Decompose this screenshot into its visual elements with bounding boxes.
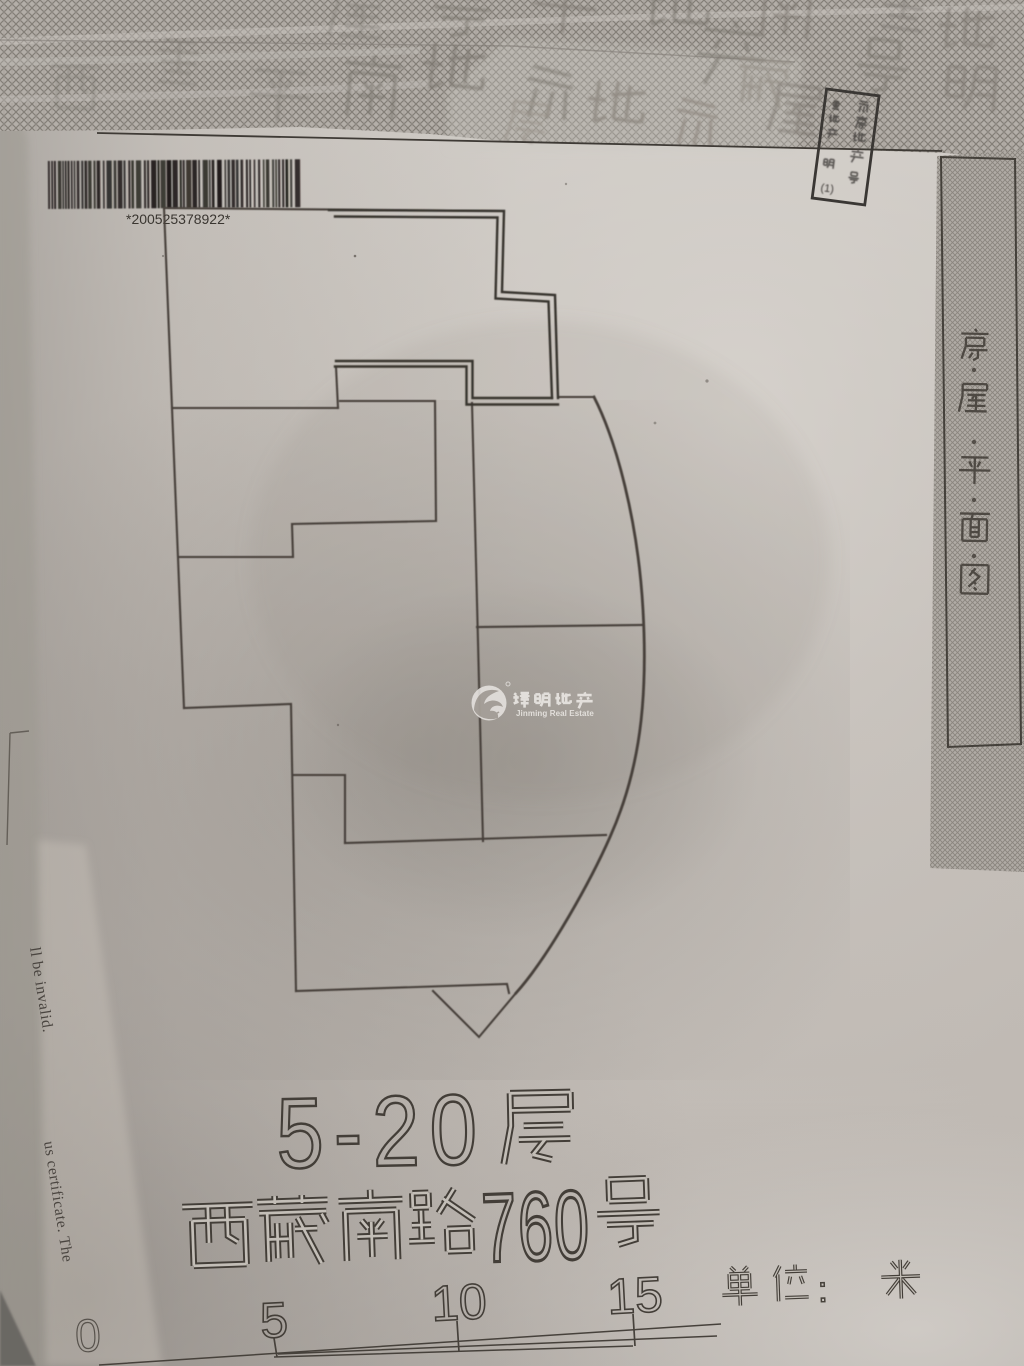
svg-text::: : [817,1269,828,1310]
svg-text:*200525378922*: *200525378922* [126,211,231,227]
svg-text:(1): (1) [820,182,835,196]
svg-text:5-20: 5-20 [275,1073,488,1189]
svg-text:0: 0 [74,1309,102,1362]
svg-text:10: 10 [430,1273,488,1332]
svg-text:Jinming Real Estate: Jinming Real Estate [516,709,594,718]
svg-text:760: 760 [480,1171,592,1283]
svg-text:15: 15 [606,1266,664,1325]
